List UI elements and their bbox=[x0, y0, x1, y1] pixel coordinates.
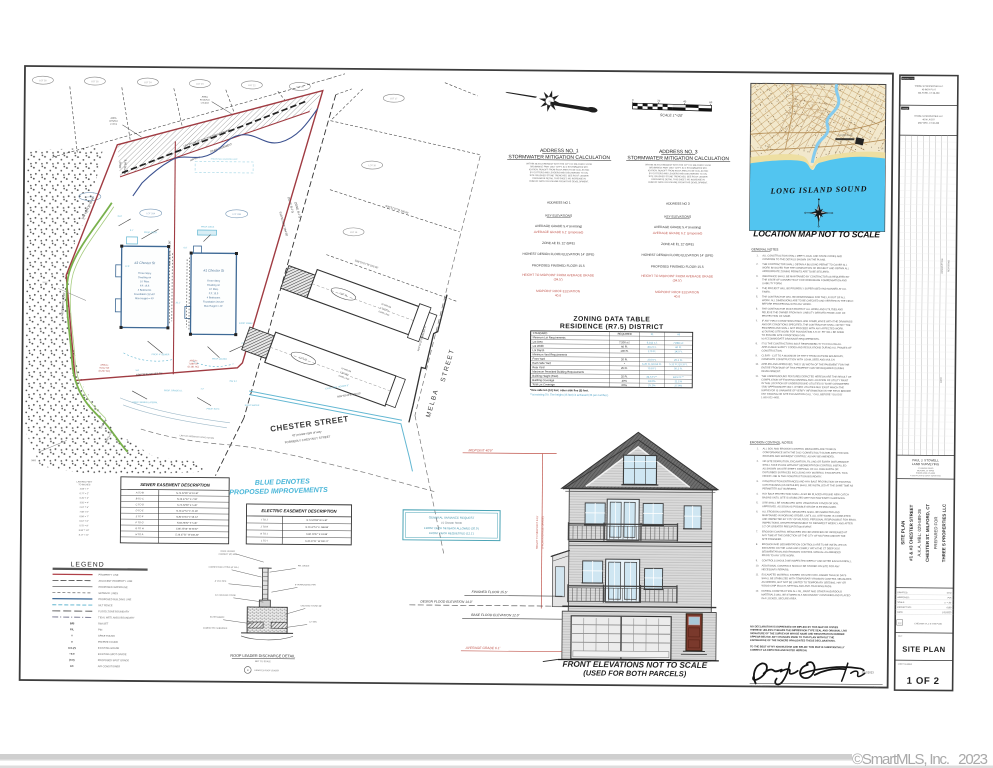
svg-text:9.: 9. bbox=[756, 559, 758, 562]
svg-text:KEY ELEVATIONS: KEY ELEVATIONS bbox=[664, 215, 691, 219]
svg-text:AREA: AREA bbox=[202, 96, 209, 99]
svg-text:0.58' = 7": 0.58' = 7" bbox=[79, 516, 88, 518]
svg-text:34.5 Ft.**: 34.5 Ft.** bbox=[646, 375, 657, 379]
svg-text:BLUE DENOTES: BLUE DENOTES bbox=[255, 478, 310, 486]
svg-text:8.17' = 11": 8.17' = 11" bbox=[79, 534, 89, 536]
svg-text:LOT 25: LOT 25 bbox=[91, 81, 99, 83]
svg-text:11.: 11. bbox=[756, 573, 760, 576]
svg-text:3.: 3. bbox=[756, 275, 758, 278]
svg-text:Building Coverage: Building Coverage bbox=[532, 378, 555, 382]
svg-text:12" MIN.: 12" MIN. bbox=[309, 622, 317, 624]
svg-text:AVERAGE GRADE 6.1' (proposed): AVERAGE GRADE 6.1' (proposed) bbox=[534, 230, 584, 234]
svg-text:**at existing 5'0. The height: **at existing 5'0. The height (35 feet) … bbox=[530, 392, 608, 397]
svg-text:PRIOR TO ANY SITE WORK.: PRIOR TO ANY SITE WORK. bbox=[762, 554, 795, 557]
svg-text:DISCHARGE DETAIL THIS SHEET. N: DISCHARGE DETAIL THIS SHEET. NO INCREASE… bbox=[532, 177, 586, 180]
svg-text:Minimum Lot Requirements: Minimum Lot Requirements bbox=[533, 335, 567, 339]
svg-text:40 N LN 207: 40 N LN 207 bbox=[922, 119, 935, 121]
svg-text:ROOF LEADER DISCHARGE DETA: ROOF LEADER DISCHARGE DETAIL bbox=[230, 654, 295, 659]
svg-text:7.: 7. bbox=[756, 320, 758, 323]
svg-text:DISCHARGE DETAIL THIS SHEET. N: DISCHARGE DETAIL THIS SHEET. NO INCREASE… bbox=[651, 178, 705, 181]
svg-text:CONNECTION FITTING (4" DIA.): CONNECTION FITTING (4" DIA.) bbox=[209, 566, 239, 569]
svg-text:6.: 6. bbox=[756, 308, 758, 311]
svg-text:N.16 37'51" E 41.00': N.16 37'51" E 41.00' bbox=[176, 510, 198, 513]
svg-text:PERIMETER SILT BARRIERS.: PERIMETER SILT BARRIERS. bbox=[762, 487, 797, 490]
svg-text:7.2': 7.2' bbox=[200, 389, 204, 391]
svg-text:EXIST WATER: EXIST WATER bbox=[245, 404, 260, 407]
svg-text:PROPOSED BUILDING LINE: PROPOSED BUILDING LINE bbox=[98, 598, 131, 601]
svg-text:I TO J: I TO J bbox=[261, 518, 268, 521]
svg-text:*: * bbox=[624, 362, 625, 366]
svg-text:Foundation 26'x40': Foundation 26'x40' bbox=[134, 293, 156, 296]
svg-text:(USED FOR BOTH PARCELS): (USED FOR BOTH PARCELS) bbox=[583, 668, 687, 678]
svg-text:60 Ft.: 60 Ft. bbox=[675, 345, 682, 349]
svg-text:PROPOSED SPOT GRADE: PROPOSED SPOT GRADE bbox=[98, 659, 130, 662]
svg-text:AVERAGE GRADE 5.4' (existing): AVERAGE GRADE 5.4' (existing) bbox=[654, 225, 701, 229]
svg-text:N.73 22'09" W 5.30': N.73 22'09" W 5.30' bbox=[306, 519, 328, 522]
svg-text:R: R bbox=[247, 669, 249, 672]
svg-text:80.2 Ft.: 80.2 Ft. bbox=[648, 345, 657, 349]
svg-text:IN A LOCKED, SECURE AREA.: IN A LOCKED, SECURE AREA. bbox=[761, 597, 797, 600]
svg-text:20.1': 20.1' bbox=[176, 302, 181, 304]
svg-text:EXIST SSMH: EXIST SSMH bbox=[239, 323, 253, 325]
svg-text:Dwelling on: Dwelling on bbox=[207, 284, 221, 287]
svg-text:AREA: AREA bbox=[111, 117, 118, 120]
svg-text:PROPOSED FINISHED FLOOR 15.5: PROPOSED FINISHED FLOOR 15.5 bbox=[532, 263, 585, 267]
svg-text:5.8': 5.8' bbox=[136, 370, 140, 372]
svg-text:6.20 Ft./10.63 Ft.: 6.20 Ft./10.63 Ft. bbox=[642, 362, 662, 366]
svg-text:0.77' = 2": 0.77' = 2" bbox=[80, 493, 89, 495]
svg-text:5.12 Ft./10.3 Ft.: 5.12 Ft./10.3 Ft. bbox=[669, 362, 688, 366]
svg-text:35 Ft.: 35 Ft. bbox=[621, 375, 628, 379]
svg-text:b) ACCOMMODATE DRAINAGE REQUIR: b) ACCOMMODATE DRAINAGE REQUIREMENTS. bbox=[762, 337, 820, 341]
svg-text:*One side ten (10) feet; other: *One side ten (10) feet; other side five… bbox=[530, 388, 589, 393]
svg-text:PJS: PJS bbox=[948, 597, 952, 599]
svg-text:L=116.9: L=116.9 bbox=[201, 103, 210, 105]
svg-text:SITE ENGINEER.: SITE ENGINEER. bbox=[762, 538, 782, 541]
svg-text:6.83' = 10": 6.83' = 10" bbox=[79, 530, 90, 532]
svg-text:FILE:: FILE: bbox=[898, 636, 903, 638]
svg-text:D TO E: D TO E bbox=[136, 509, 144, 512]
svg-text:18.0%: 18.0% bbox=[648, 379, 656, 383]
svg-text:LOT 22: LOT 22 bbox=[248, 85, 256, 87]
svg-text:SCALE:: SCALE: bbox=[897, 601, 905, 604]
svg-text:20 Ft.: 20 Ft. bbox=[621, 357, 628, 361]
svg-text:SITE CRUSHED STONE TRENCHES. S: SITE CRUSHED STONE TRENCHES. SEE ROOF LE… bbox=[649, 175, 708, 179]
svg-text:LOT 20B: LOT 20B bbox=[232, 214, 241, 216]
svg-text:BY GUTTERS AND LEADERS AND DIS: BY GUTTERS AND LEADERS AND DISCHARGED TO… bbox=[649, 172, 708, 176]
svg-text:PAUL J. STOWELL, L.S. No.: PAUL J. STOWELL, L.S. No. bbox=[751, 685, 779, 688]
svg-text:10' Piles: 10' Piles bbox=[140, 280, 150, 283]
svg-text:PROPERTY LINE: PROPERTY LINE bbox=[99, 574, 119, 577]
svg-text:0.67' = 8": 0.67' = 8" bbox=[79, 521, 88, 523]
svg-text:DENOTES ROOF LEADER: DENOTES ROOF LEADER bbox=[254, 669, 279, 672]
svg-text:(34.5'): (34.5') bbox=[554, 277, 563, 281]
svg-text:K TO L: K TO L bbox=[261, 532, 269, 535]
svg-text:INV 3.2: INV 3.2 bbox=[230, 381, 238, 383]
svg-text:4" PVC PIPE: 4" PVC PIPE bbox=[215, 581, 227, 583]
svg-text:10.: 10. bbox=[756, 564, 760, 567]
svg-text:Three Story: Three Story bbox=[138, 272, 152, 275]
svg-text:HIGHEST DESIGN FLOOD ELEVATION: HIGHEST DESIGN FLOOD ELEVATION 14' (DFE) bbox=[522, 252, 594, 257]
svg-text:PROP. DECK: PROP. DECK bbox=[201, 227, 215, 229]
svg-text:DESIGN FLOOD ELEVATION 14.0': DESIGN FLOOD ELEVATION 14.0' bbox=[420, 599, 472, 603]
svg-text:N.16 37'51" E 168.98': N.16 37'51" E 168.98' bbox=[305, 526, 329, 529]
svg-text:1-800-922-4455.: 1-800-922-4455. bbox=[761, 396, 780, 399]
svg-text:CHESTER ST_1-3 SITE PLAN: CHESTER ST_1-3 SITE PLAN bbox=[914, 622, 942, 625]
svg-text:ADDRESS NO 1: ADDRESS NO 1 bbox=[547, 201, 571, 205]
svg-text:4 Bedrooms: 4 Bedrooms bbox=[138, 289, 152, 292]
svg-text:PROPOSED WATERLINE: PROPOSED WATERLINE bbox=[98, 586, 128, 589]
svg-text:LOT 23: LOT 23 bbox=[196, 84, 204, 86]
svg-text:LAND SURVEYING: LAND SURVEYING bbox=[912, 462, 940, 466]
svg-text:FRONT DECK SETBACK ALLOWED (20: FRONT DECK SETBACK ALLOWED (20.0') bbox=[424, 526, 479, 530]
svg-text:RUNOFF RATE OR VOLUME FROM THI: RUNOFF RATE OR VOLUME FROM THIS DEVELOPM… bbox=[648, 181, 708, 185]
svg-text:4.: 4. bbox=[756, 287, 758, 290]
svg-text:SCALE 1"=20': SCALE 1"=20' bbox=[660, 113, 683, 118]
svg-text:MILFORD, CT 06,460: MILFORD, CT 06,460 bbox=[918, 93, 940, 95]
svg-text:AIR CONDITIONER: AIR CONDITIONER bbox=[98, 665, 121, 668]
svg-text:R=1375.0: R=1375.0 bbox=[200, 100, 210, 102]
svg-text:CTW: CTW bbox=[947, 593, 952, 595]
svg-text:FILTER FABRIC: FILTER FABRIC bbox=[210, 616, 225, 619]
svg-text:TO INCHES: TO INCHES bbox=[78, 484, 90, 486]
svg-text:PROJECT NO.:: PROJECT NO.: bbox=[897, 607, 912, 609]
svg-text:40 INDY PL#7: 40 INDY PL#7 bbox=[922, 89, 937, 91]
svg-text:CONNECT (4") MIN.: CONNECT (4") MIN. bbox=[219, 554, 238, 556]
svg-text:CONFORM TO THE DETAILS SHOWN O: CONFORM TO THE DETAILS SHOWN ON THE PLAN… bbox=[762, 258, 826, 262]
svg-text:8.: 8. bbox=[756, 543, 758, 546]
svg-text:N.73 22'09" W 10.30': N.73 22'09" W 10.30' bbox=[176, 492, 199, 495]
svg-text:9,012 s.f.: 9,012 s.f. bbox=[647, 341, 658, 345]
svg-text:+0.0: +0.0 bbox=[69, 652, 75, 656]
svg-text:SHEET NUMBER: SHEET NUMBER bbox=[898, 664, 913, 666]
svg-text:DATE: DATE bbox=[873, 686, 879, 689]
svg-text:KEY ELEVATIONS: KEY ELEVATIONS bbox=[545, 214, 572, 218]
svg-text:R=525.0: R=525.0 bbox=[109, 121, 118, 123]
svg-text:6.: 6. bbox=[756, 510, 758, 513]
svg-text:0.25' = 3": 0.25' = 3" bbox=[80, 498, 89, 500]
svg-text:ELECTRIC EASEMENT DESCRIPTION: ELECTRIC EASEMENT DESCRIPTION bbox=[261, 508, 337, 514]
svg-text:G TO H: G TO H bbox=[135, 527, 143, 530]
svg-text:F.F. 15.5: F.F. 15.5 bbox=[209, 292, 219, 295]
svg-text:6.0': 6.0' bbox=[184, 247, 188, 249]
svg-text:2.67' = 5": 2.67' = 5" bbox=[80, 507, 89, 509]
svg-text:Max Height = 40': Max Height = 40' bbox=[204, 305, 223, 308]
svg-text:2.: 2. bbox=[757, 460, 759, 463]
svg-text:CONSTRUCTION.: CONSTRUCTION. bbox=[762, 349, 783, 352]
svg-text:SITE CRUSHED STONE TRENCHES. S: SITE CRUSHED STONE TRENCHES. SEE ROOF LE… bbox=[530, 174, 589, 178]
svg-text:10' Piles: 10' Piles bbox=[209, 288, 219, 291]
svg-text:Each Side Yard: Each Side Yard bbox=[532, 361, 551, 365]
svg-text:THREE S PROPERTIES LLC: THREE S PROPERTIES LLC bbox=[914, 86, 943, 88]
svg-text:LEGEND: LEGEND bbox=[71, 561, 105, 568]
svg-text:11.: 11. bbox=[755, 375, 759, 378]
svg-text:ZONE AE EL 12' (BFE): ZONE AE EL 12' (BFE) bbox=[542, 241, 575, 245]
svg-text:LOT 15: LOT 15 bbox=[350, 232, 358, 234]
svg-text:DATE: DATE bbox=[940, 377, 943, 383]
svg-text:7.: 7. bbox=[756, 530, 758, 533]
svg-text:(FROM AVERAGE GRADE): (FROM AVERAGE GRADE) bbox=[540, 516, 544, 548]
svg-text:COMPACTED SUBGRADE: COMPACTED SUBGRADE bbox=[203, 627, 228, 630]
svg-text:(0.0): (0.0) bbox=[69, 658, 75, 662]
svg-text:(0.207 AC): (0.207 AC) bbox=[99, 370, 111, 373]
svg-text:Rear Yard: Rear Yard bbox=[532, 365, 545, 369]
svg-text:N.16 37'51" E 7.00': N.16 37'51" E 7.00' bbox=[177, 498, 198, 501]
svg-text:60%: 60% bbox=[622, 383, 628, 387]
svg-text:BY GUTTERS AND LEADERS AND DIS: BY GUTTERS AND LEADERS AND DISCHARGED TO… bbox=[530, 171, 589, 175]
svg-text:MILFORD, CT 06,460: MILFORD, CT 06,460 bbox=[918, 123, 940, 125]
svg-text:S.80 10'57" E 16.98': S.80 10'57" E 16.98' bbox=[306, 533, 328, 536]
svg-text:Three Story: Three Story bbox=[207, 280, 221, 283]
svg-text:12.6': 12.6' bbox=[125, 266, 130, 268]
svg-text:PROP. WATER: PROP. WATER bbox=[212, 358, 227, 361]
svg-text:S.16 37'51" W 192.17': S.16 37'51" W 192.17' bbox=[305, 540, 329, 543]
svg-text:Maximum Permitted Building Req: Maximum Permitted Building Requirements bbox=[532, 369, 584, 373]
svg-text:SITE PLAN: SITE PLAN bbox=[900, 520, 905, 545]
svg-text:PROTECTION OF SAME.: PROTECTION OF SAME. bbox=[762, 315, 791, 318]
svg-text:PROP. 4" SEWER: PROP. 4" SEWER bbox=[152, 354, 170, 356]
svg-text:RESIDENCE (R7.5) DISTRICT: RESIDENCE (R7.5) DISTRICT bbox=[560, 323, 664, 331]
svg-text:5.1': 5.1' bbox=[130, 230, 134, 232]
svg-text:SEWER EASEMENT DESCRIPTION: SEWER EASEMENT DESCRIPTION bbox=[140, 482, 211, 488]
svg-text:L TO I: L TO I bbox=[261, 539, 268, 542]
svg-text:APPROVED. AS SOON AS POSSIBLE: APPROVED. AS SOON AS POSSIBLE GRADE IS E… bbox=[762, 505, 837, 509]
svg-text:THREE S PROPERTIES LLC: THREE S PROPERTIES LLC bbox=[914, 116, 943, 118]
svg-text:J TO K: J TO K bbox=[261, 525, 269, 528]
svg-text:25.2%: 25.2% bbox=[648, 383, 656, 387]
svg-text:5/10/2023: 5/10/2023 bbox=[862, 670, 874, 674]
svg-text:DRAFTED:: DRAFTED: bbox=[897, 591, 908, 594]
svg-text:9.: 9. bbox=[755, 354, 757, 357]
svg-text:Front Yard: Front Yard bbox=[532, 357, 545, 361]
svg-text:CHESTER ST. MILFORD, CT: CHESTER ST. MILFORD, CT bbox=[925, 504, 931, 562]
svg-text:FIN. GRADE: FIN. GRADE bbox=[298, 564, 310, 567]
svg-text:FLOOD ZONE BOUNDARY: FLOOD ZONE BOUNDARY bbox=[98, 610, 129, 613]
svg-text:Total Lot Coverage: Total Lot Coverage bbox=[532, 382, 555, 386]
svg-text:FINISHED FLOOR 15.5': FINISHED FLOOR 15.5' bbox=[472, 590, 508, 594]
svg-text:LOT 20A: LOT 20A bbox=[146, 212, 155, 215]
svg-text:ORDINANCE PART 186.7 CHPT. 52.: ORDINANCE PART 186.7 CHPT. 52.2 STORMWAT… bbox=[649, 166, 708, 170]
svg-text:1" = 20': 1" = 20' bbox=[944, 602, 952, 604]
svg-text:H TO A: H TO A bbox=[135, 533, 143, 536]
svg-text:TREE: TREE bbox=[42, 282, 48, 284]
svg-text:21.1%: 21.1% bbox=[675, 379, 683, 383]
svg-text:F TO G: F TO G bbox=[136, 521, 144, 524]
svg-text:MIDPOINT 40'9": MIDPOINT 40'9" bbox=[468, 448, 493, 452]
svg-text:WOOD CHIP MULCH, NETTING AND A: WOOD CHIP MULCH, NETTING AND ANTI-TRACKI… bbox=[761, 585, 832, 589]
svg-text:DATE:: DATE: bbox=[897, 611, 903, 614]
svg-text:SILT FENCE: SILT FENCE bbox=[98, 604, 113, 607]
svg-text:(0.181 AC): (0.181 AC) bbox=[188, 365, 200, 368]
svg-text:5.: 5. bbox=[756, 501, 758, 504]
svg-text:GENERAL NOTES: GENERAL NOTES bbox=[751, 247, 778, 251]
svg-text:50.2 Ft.: 50.2 Ft. bbox=[674, 366, 683, 370]
svg-text:FENCE LINE IS THE CONSTRUCTION: FENCE LINE IS THE CONSTRUCTION BOUNDARY. bbox=[762, 475, 822, 479]
svg-text:40.6: 40.6 bbox=[555, 293, 561, 297]
svg-text:100 Ft.: 100 Ft. bbox=[620, 349, 629, 353]
svg-text:A TO B: A TO B bbox=[135, 491, 144, 494]
svg-text:#1 Chester St: #1 Chester St bbox=[203, 269, 225, 273]
svg-text:PROPOSED FINISHED FLOOR 15.5: PROPOSED FINISHED FLOOR 15.5 bbox=[651, 264, 704, 268]
svg-text:EROSION AND SEDIMENT CONTROL': EROSION AND SEDIMENT CONTROL' AS MAY BE … bbox=[763, 455, 835, 459]
svg-text:E TO F: E TO F bbox=[136, 515, 144, 518]
svg-text:1.: 1. bbox=[757, 447, 759, 450]
svg-text:4 Bedrooms: 4 Bedrooms bbox=[207, 296, 221, 299]
svg-text:RIM SET: RIM SET bbox=[98, 622, 109, 625]
svg-text:70.8 Ft.: 70.8 Ft. bbox=[647, 366, 656, 370]
svg-text:PIN/PIPE FOUND: PIN/PIPE FOUND bbox=[98, 641, 118, 644]
svg-text:LATERAL FEET: LATERAL FEET bbox=[77, 480, 93, 483]
svg-text:1/31/2023: 1/31/2023 bbox=[942, 612, 952, 614]
svg-text:SITE PLAN: SITE PLAN bbox=[902, 645, 945, 654]
svg-text:7,500 s.f.: 7,500 s.f. bbox=[619, 340, 630, 344]
svg-text:THREE S PROPERTIES LLC: THREE S PROPERTIES LLC bbox=[941, 503, 947, 562]
svg-text:1/2' OR GREATER PRECIPITATION: 1/2' OR GREATER PRECIPITATION EVENT. bbox=[762, 525, 812, 528]
svg-text:©SmartMLS, Inc. 2023: ©SmartMLS, Inc. 2023 bbox=[852, 751, 988, 768]
svg-text:2.: 2. bbox=[756, 263, 758, 266]
svg-text:FRONT DECK REQUESTED (12.1'): FRONT DECK REQUESTED (12.1') bbox=[429, 531, 474, 535]
svg-text:SETBACK LINES: SETBACK LINES bbox=[98, 592, 118, 595]
svg-text:LOT 26: LOT 26 bbox=[39, 80, 47, 82]
svg-text:TIMES.: TIMES. bbox=[762, 291, 771, 294]
svg-text:3600: 3600 bbox=[31, 460, 37, 462]
svg-text:B TO C: B TO C bbox=[136, 497, 144, 500]
svg-text:20.0 Ft.: 20.0 Ft. bbox=[648, 358, 657, 362]
svg-text:HIGHEST DESIGN FLOOD ELEVATION: HIGHEST DESIGN FLOOD ELEVATION 14' (DFE) bbox=[641, 253, 713, 258]
svg-text:BEFORE PROCEEDING WITH ANY WOR: BEFORE PROCEEDING WITH ANY WORK. bbox=[762, 303, 812, 306]
svg-text:7.58' = 6": 7.58' = 6" bbox=[80, 511, 89, 513]
svg-text:STANDARD: STANDARD bbox=[533, 331, 548, 335]
svg-text:PROP. GRADE 6.1: PROP. GRADE 6.1 bbox=[164, 389, 183, 392]
svg-text:AVERAGE GRADE 6.1': AVERAGE GRADE 6.1' bbox=[465, 646, 501, 650]
svg-text:EROSION CONTROL NOTES: EROSION CONTROL NOTES bbox=[750, 440, 793, 444]
svg-text:APPROVED:: APPROVED: bbox=[897, 596, 910, 599]
svg-text:REVISIONS: REVISIONS bbox=[948, 260, 950, 272]
svg-text:15.0': 15.0' bbox=[117, 216, 122, 218]
svg-text:10.: 10. bbox=[755, 363, 759, 366]
svg-text:Lot Depth: Lot Depth bbox=[533, 348, 545, 352]
svg-text:Max Height = 40': Max Height = 40' bbox=[135, 297, 154, 300]
svg-text:ZONE AE EL 12' (BFE): ZONE AE EL 12' (BFE) bbox=[661, 242, 694, 246]
svg-text:0.75' = 9": 0.75' = 9" bbox=[79, 525, 88, 527]
svg-text:MILFORD BEACH: MILFORD BEACH bbox=[838, 134, 853, 137]
svg-text:AVERAGE GRADE 6.1' (proposed): AVERAGE GRADE 6.1' (proposed) bbox=[653, 231, 703, 235]
svg-text:34.5 Ft.**: 34.5 Ft.** bbox=[673, 375, 684, 379]
svg-text:TIDAL WETLANDS BOUNDARY: TIDAL WETLANDS BOUNDARY bbox=[98, 616, 135, 619]
svg-text:27.9%: 27.9% bbox=[675, 384, 683, 388]
svg-text:LOT 17: LOT 17 bbox=[390, 98, 398, 100]
svg-text:PREPARED FOR: PREPARED FOR bbox=[933, 517, 938, 550]
svg-text:EXISTING SPOT GRADE: EXISTING SPOT GRADE bbox=[98, 653, 127, 656]
svg-text:4.: 4. bbox=[756, 493, 758, 496]
svg-text:N87°31'56"E: N87°31'56"E bbox=[123, 159, 128, 174]
svg-text:LOCATION MAP NOT TO SCALE: LOCATION MAP NOT TO SCALE bbox=[753, 228, 880, 239]
svg-text:S.73 22'09" E 5.30': S.73 22'09" E 5.30' bbox=[177, 504, 198, 507]
svg-text:40.6: 40.6 bbox=[674, 294, 680, 298]
svg-text:3.: 3. bbox=[756, 480, 758, 483]
svg-text:#1 & #3 CHESTER STREET: #1 & #3 CHESTER STREET bbox=[908, 504, 913, 560]
svg-text:#1 Chester Street: #1 Chester Street bbox=[441, 521, 462, 525]
svg-text:AVERAGE GRADE 5.4' (existing): AVERAGE GRADE 5.4' (existing) bbox=[535, 224, 582, 228]
svg-text:28.00': 28.00' bbox=[118, 161, 122, 169]
svg-text:ZONING DATA TABLE: ZONING DATA TABLE bbox=[573, 316, 650, 324]
svg-text:BASE FLOOD ELEVATION 12.0': BASE FLOOD ELEVATION 12.0' bbox=[471, 613, 519, 617]
svg-text:8.: 8. bbox=[756, 342, 758, 345]
svg-text:ROOF LEADER: ROOF LEADER bbox=[221, 550, 236, 553]
svg-text:LOT 24: LOT 24 bbox=[144, 82, 152, 84]
svg-text:xxx.yy: xxx.yy bbox=[68, 647, 77, 650]
svg-text:40%: 40% bbox=[622, 379, 628, 383]
svg-text:NECESSARY REPAIRS.: NECESSARY REPAIRS. bbox=[762, 568, 790, 571]
svg-text:GENERAL VARIANCE REQUEST: GENERAL VARIANCE REQUEST bbox=[429, 516, 475, 520]
svg-text:5.: 5. bbox=[756, 295, 758, 298]
svg-text:A.K.A. MBL: 029-589-26: A.K.A. MBL: 029-589-26 bbox=[917, 508, 922, 556]
svg-text:2.68' = 7": 2.68' = 7" bbox=[80, 488, 89, 490]
svg-text:#3 Chester St: #3 Chester St bbox=[134, 261, 156, 265]
svg-text:ADJACENT PROPERTY LINE: ADJACENT PROPERTY LINE bbox=[98, 580, 132, 583]
svg-text:ORDINANCE PART 186.7 CHPT. 52.: ORDINANCE PART 186.7 CHPT. 52.2 STORMWAT… bbox=[530, 165, 589, 169]
svg-text:CRUSHED STONE 3/4": CRUSHED STONE 3/4" bbox=[301, 605, 323, 607]
svg-text:NOT TO SCALE: NOT TO SCALE bbox=[255, 660, 271, 663]
svg-text:2.0' CRUSHED STONE: 2.0' CRUSHED STONE bbox=[215, 595, 237, 597]
svg-text:Lot Area: Lot Area bbox=[533, 340, 544, 344]
svg-text:142 Ft.: 142 Ft. bbox=[674, 349, 682, 353]
svg-text:P/L: P/L bbox=[70, 627, 74, 631]
svg-text:LOT 16: LOT 16 bbox=[368, 165, 376, 167]
svg-text:S.80 10'56" W 59.67': S.80 10'56" W 59.67' bbox=[176, 528, 199, 531]
svg-text:12.: 12. bbox=[755, 590, 759, 593]
svg-text:EXISTING GRADE: EXISTING GRADE bbox=[98, 647, 120, 650]
svg-text:PROP. DECK: PROP. DECK bbox=[144, 232, 158, 234]
svg-text:REQUIRED: REQUIRED bbox=[618, 332, 632, 336]
svg-text:1 OF 2: 1 OF 2 bbox=[907, 676, 940, 687]
svg-text:F.F. 15.5: F.F. 15.5 bbox=[140, 285, 150, 288]
svg-text:S.16 37'51" W 100.30': S.16 37'51" W 100.30' bbox=[175, 533, 199, 536]
svg-text:PROPOSED GRADING LIMIT: PROPOSED GRADING LIMIT bbox=[211, 158, 239, 161]
svg-text:1.: 1. bbox=[756, 254, 758, 257]
svg-text:ADDRESS NO 3: ADDRESS NO 3 bbox=[666, 202, 690, 206]
svg-text:AC: AC bbox=[70, 664, 74, 668]
svg-text:60 Ft.: 60 Ft. bbox=[621, 345, 628, 349]
svg-text:OWNER: OWNER bbox=[902, 108, 909, 110]
svg-text:Dwelling on: Dwelling on bbox=[138, 276, 152, 279]
svg-text:20.1 Ft.: 20.1 Ft. bbox=[674, 358, 683, 362]
svg-text:Foundation 26'x40': Foundation 26'x40' bbox=[203, 301, 225, 304]
svg-text:SPIKE FOUND: SPIKE FOUND bbox=[98, 635, 115, 638]
svg-text:APPROPRIATE ZONING PERMITS ARE: APPROPRIATE ZONING PERMITS ARE TO BE SEC… bbox=[762, 270, 830, 274]
svg-text:(34.5'): (34.5') bbox=[673, 278, 682, 282]
svg-text:3.55' = 4": 3.55' = 4" bbox=[80, 502, 89, 504]
svg-text:© 2015 ATLANTIC COAST SURVEYIN: © 2015 ATLANTIC COAST SURVEYING bbox=[910, 474, 941, 477]
svg-text:Minimum Yard Requirements: Minimum Yard Requirements bbox=[532, 352, 567, 356]
svg-text:L=47.9: L=47.9 bbox=[110, 124, 118, 126]
svg-text:25 Ft.: 25 Ft. bbox=[621, 366, 628, 370]
svg-text:RUNOFF RATE OR VOLUME FROM THI: RUNOFF RATE OR VOLUME FROM THIS DEVELOPM… bbox=[529, 180, 589, 184]
svg-text:PROP. ELEC: PROP. ELEC bbox=[207, 409, 220, 411]
svg-text:N.84 29'22" E 5.30': N.84 29'22" E 5.30' bbox=[177, 522, 198, 525]
svg-text:PIN: PIN bbox=[98, 629, 102, 632]
svg-text:170 Ft.: 170 Ft. bbox=[648, 349, 656, 353]
svg-text:7,889 s.f.: 7,889 s.f. bbox=[673, 341, 684, 345]
svg-text:C TO D: C TO D bbox=[136, 503, 144, 506]
svg-text:DEVELOPMENT.: DEVELOPMENT. bbox=[761, 370, 781, 373]
svg-text:B/B: B/B bbox=[70, 621, 75, 625]
svg-text:Building Height (Feet): Building Height (Feet) bbox=[532, 374, 558, 378]
svg-text:DESCRIPTION: DESCRIPTION bbox=[942, 258, 944, 273]
svg-text:Lot Width: Lot Width bbox=[533, 344, 545, 348]
svg-text:CORRECT AS DEPICTED AND NOTED: CORRECT AS DEPICTED AND NOTED HEREON. bbox=[750, 649, 808, 653]
svg-text:4" PERFORATED PIPE: 4" PERFORATED PIPE bbox=[295, 583, 317, 586]
